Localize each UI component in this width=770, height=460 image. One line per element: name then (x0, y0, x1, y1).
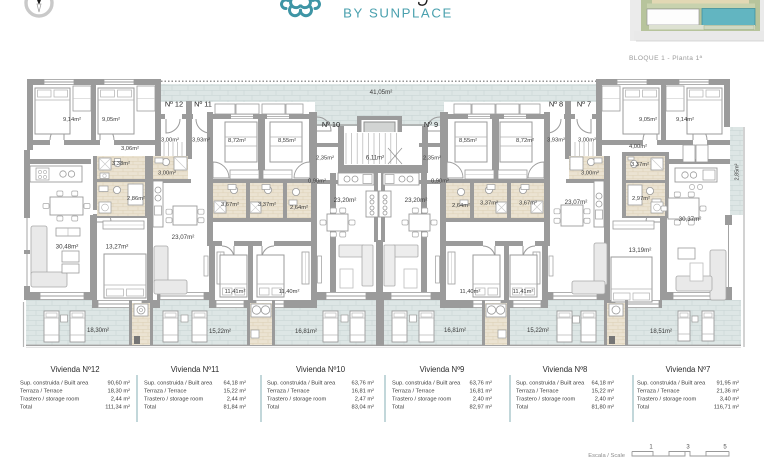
svg-text:63,76 m²: 63,76 m² (352, 381, 375, 387)
svg-text:30,48m²: 30,48m² (56, 244, 79, 251)
svg-text:15,22 m²: 15,22 m² (592, 389, 615, 395)
svg-text:2,44 m²: 2,44 m² (111, 397, 130, 403)
svg-text:111,34 m²: 111,34 m² (105, 405, 130, 411)
svg-text:2,86m²: 2,86m² (127, 196, 145, 202)
svg-text:3,67m²: 3,67m² (519, 201, 537, 207)
svg-text:16,81m²: 16,81m² (444, 328, 466, 334)
svg-text:8,72m²: 8,72m² (516, 138, 534, 144)
svg-text:2,85m²: 2,85m² (735, 163, 741, 180)
svg-text:15,22 m²: 15,22 m² (224, 389, 247, 395)
svg-text:Vivienda Nº10: Vivienda Nº10 (296, 365, 346, 374)
svg-text:63,76 m²: 63,76 m² (470, 381, 493, 387)
svg-text:3,37m²: 3,37m² (480, 201, 498, 207)
svg-text:3,00m²: 3,00m² (161, 138, 179, 144)
svg-text:21,36 m²: 21,36 m² (717, 389, 740, 395)
svg-text:9,14m²: 9,14m² (676, 117, 694, 123)
svg-text:2,44 m²: 2,44 m² (227, 397, 246, 403)
svg-text:64,18 m²: 64,18 m² (224, 381, 247, 387)
svg-text:91,95 m²: 91,95 m² (717, 381, 740, 387)
svg-text:Total: Total (20, 405, 32, 411)
svg-text:Vivienda Nº12: Vivienda Nº12 (50, 365, 99, 374)
svg-text:81,84 m²: 81,84 m² (224, 405, 247, 411)
svg-text:4,00m²: 4,00m² (629, 144, 647, 150)
svg-text:3,38m²: 3,38m² (112, 161, 130, 167)
svg-text:Sup. construida / Built area: Sup. construida / Built area (144, 381, 213, 387)
svg-text:Escala / Scale: Escala / Scale (588, 453, 625, 459)
svg-text:2,40 m²: 2,40 m² (473, 397, 492, 403)
svg-text:3,37m²: 3,37m² (258, 202, 276, 208)
svg-text:Sup. construida / Built area: Sup. construida / Built area (20, 381, 89, 387)
svg-text:Terraza / Terrace: Terraza / Terrace (637, 389, 680, 395)
svg-text:18,30m²: 18,30m² (87, 328, 109, 334)
svg-text:Total: Total (637, 405, 649, 411)
svg-text:2,40 m²: 2,40 m² (595, 397, 614, 403)
svg-text:Trastero / storage room: Trastero / storage room (637, 397, 696, 403)
svg-text:0,90m²: 0,90m² (431, 179, 449, 185)
svg-text:Nº 11: Nº 11 (194, 100, 212, 109)
svg-text:2,47 m²: 2,47 m² (355, 397, 374, 403)
svg-text:3,00m²: 3,00m² (581, 171, 599, 177)
svg-text:Nº 9: Nº 9 (424, 120, 438, 129)
svg-text:11,41m²: 11,41m² (513, 289, 534, 295)
svg-text:Trastero / storage room: Trastero / storage room (267, 397, 326, 403)
svg-text:Terraza / Terrace: Terraza / Terrace (20, 389, 63, 395)
svg-text:Nº 7: Nº 7 (577, 100, 591, 109)
svg-text:116,71 m²: 116,71 m² (714, 405, 739, 411)
svg-text:82,97 m²: 82,97 m² (470, 405, 493, 411)
svg-text:Vivienda Nº7: Vivienda Nº7 (666, 365, 711, 374)
svg-text:Vivienda Nº8: Vivienda Nº8 (543, 365, 588, 374)
svg-text:3,40 m²: 3,40 m² (720, 397, 739, 403)
svg-text:9,05m²: 9,05m² (102, 117, 120, 123)
svg-text:Trastero / storage room: Trastero / storage room (516, 397, 575, 403)
svg-text:Nº 12: Nº 12 (165, 100, 183, 109)
svg-text:Trastero / storage room: Trastero / storage room (392, 397, 451, 403)
svg-text:Total: Total (392, 405, 404, 411)
svg-text:Sup. construida / Built area: Sup. construida / Built area (392, 381, 461, 387)
svg-text:3,00m²: 3,00m² (158, 171, 176, 177)
svg-text:2,64m²: 2,64m² (452, 203, 470, 209)
svg-text:Vivienda Nº9: Vivienda Nº9 (420, 365, 465, 374)
svg-text:11,40m²: 11,40m² (460, 289, 481, 295)
svg-text:Terraza / Terrace: Terraza / Terrace (144, 389, 187, 395)
svg-text:Total: Total (267, 405, 279, 411)
svg-text:2,35m²: 2,35m² (316, 156, 334, 162)
svg-text:Vivienda Nº11: Vivienda Nº11 (171, 365, 220, 374)
svg-text:23,07m²: 23,07m² (565, 199, 588, 206)
svg-text:2,35m²: 2,35m² (423, 156, 441, 162)
svg-text:18,51m²: 18,51m² (650, 329, 672, 335)
svg-text:23,20m²: 23,20m² (405, 197, 428, 204)
svg-text:6,11m²: 6,11m² (366, 156, 384, 162)
svg-text:18,30 m²: 18,30 m² (108, 389, 131, 395)
svg-text:15,22m²: 15,22m² (527, 328, 549, 334)
svg-text:3,06m²: 3,06m² (121, 146, 139, 152)
svg-text:9,14m²: 9,14m² (63, 117, 81, 123)
svg-text:3,00m²: 3,00m² (578, 138, 596, 144)
svg-text:16,81 m²: 16,81 m² (470, 389, 493, 395)
svg-text:BLOQUE 1 - Planta 1ª: BLOQUE 1 - Planta 1ª (629, 55, 703, 62)
svg-text:0,90m²: 0,90m² (308, 179, 326, 185)
svg-text:16,81m²: 16,81m² (295, 329, 317, 335)
svg-text:11,41m²: 11,41m² (225, 289, 246, 295)
svg-text:2,97m²: 2,97m² (632, 196, 650, 202)
svg-text:90,60 m²: 90,60 m² (108, 381, 131, 387)
svg-text:Terraza / Terrace: Terraza / Terrace (516, 389, 559, 395)
svg-text:Terraza / Terrace: Terraza / Terrace (267, 389, 310, 395)
svg-text:3,93m²: 3,93m² (547, 138, 565, 144)
svg-text:11,40m²: 11,40m² (279, 289, 300, 295)
svg-text:Trastero / storage room: Trastero / storage room (20, 397, 79, 403)
svg-text:Terraza / Terrace: Terraza / Terrace (392, 389, 435, 395)
svg-text:81,80 m²: 81,80 m² (592, 405, 615, 411)
svg-text:15,22m²: 15,22m² (209, 329, 231, 335)
svg-text:23,07m²: 23,07m² (172, 234, 195, 241)
svg-text:Total: Total (516, 405, 528, 411)
svg-text:3,93m²: 3,93m² (192, 138, 210, 144)
svg-text:9,05m²: 9,05m² (639, 117, 657, 123)
svg-text:83,04 m²: 83,04 m² (352, 405, 375, 411)
svg-text:41,05m²: 41,05m² (370, 89, 393, 96)
svg-text:3,37m²: 3,37m² (631, 162, 649, 168)
svg-text:Sup. construida / Built area: Sup. construida / Built area (516, 381, 585, 387)
svg-text:13,19m²: 13,19m² (629, 247, 652, 254)
svg-text:Nº 8: Nº 8 (549, 100, 563, 109)
svg-text:2,64m²: 2,64m² (290, 205, 308, 211)
svg-text:30,37m²: 30,37m² (679, 216, 702, 223)
svg-text:Total: Total (144, 405, 156, 411)
svg-text:8,72m²: 8,72m² (228, 138, 246, 144)
svg-text:Sup. construida / Built area: Sup. construida / Built area (267, 381, 336, 387)
svg-text:16,81 m²: 16,81 m² (352, 389, 375, 395)
svg-text:BY SUNPLACE: BY SUNPLACE (343, 6, 453, 21)
svg-text:Sup. construida / Built area: Sup. construida / Built area (637, 381, 706, 387)
svg-text:3,67m²: 3,67m² (221, 202, 239, 208)
svg-text:8,55m²: 8,55m² (459, 138, 477, 144)
svg-text:13,27m²: 13,27m² (106, 244, 129, 251)
svg-text:8,55m²: 8,55m² (278, 138, 296, 144)
svg-text:Trastero / storage room: Trastero / storage room (144, 397, 203, 403)
svg-text:64,18 m²: 64,18 m² (592, 381, 615, 387)
svg-text:23,20m²: 23,20m² (334, 197, 357, 204)
svg-text:Nº 10: Nº 10 (322, 120, 340, 129)
